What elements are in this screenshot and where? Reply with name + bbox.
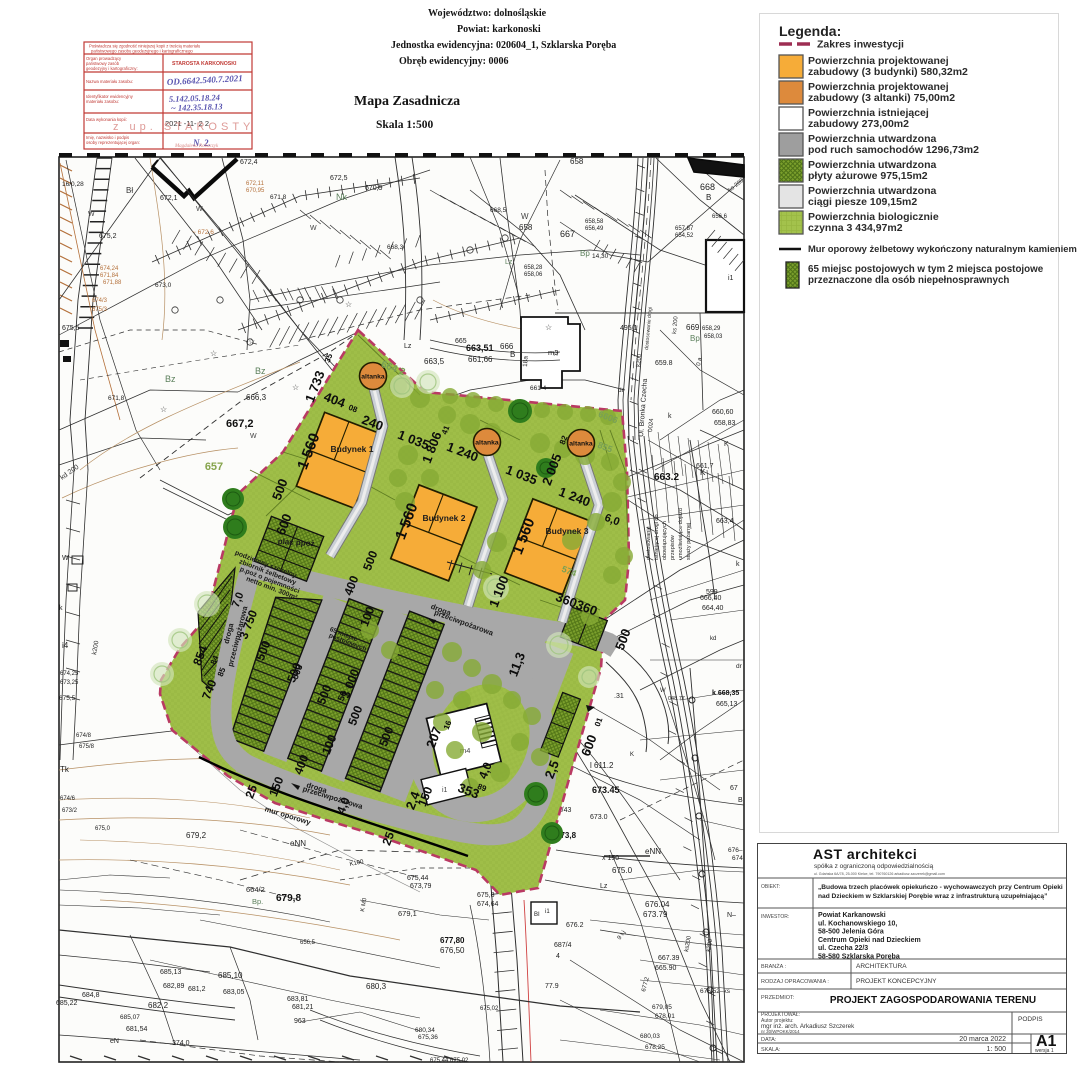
svg-text:656,49: 656,49 xyxy=(585,226,604,232)
svg-text:675,44 675,02: 675,44 675,02 xyxy=(430,1058,469,1064)
svg-text:675.0: 675.0 xyxy=(612,866,633,875)
svg-text:666,3: 666,3 xyxy=(246,393,267,402)
svg-text:672,5: 672,5 xyxy=(330,175,348,182)
svg-text:ciągi piesze 109,15m2: ciągi piesze 109,15m2 xyxy=(808,196,917,208)
svg-text:685,22: 685,22 xyxy=(56,1000,78,1007)
svg-text:665.90: 665.90 xyxy=(655,965,677,972)
svg-text:W: W xyxy=(250,433,257,440)
svg-text:i1: i1 xyxy=(442,787,448,794)
svg-text:straży pożarnej: straży pożarnej xyxy=(686,523,692,560)
svg-text:z up. STAROSTY: z up. STAROSTY xyxy=(113,121,254,133)
svg-text:665,13: 665,13 xyxy=(716,701,738,708)
svg-text:681,54: 681,54 xyxy=(126,1026,148,1033)
svg-text:ARCHITEKTURA: ARCHITEKTURA xyxy=(856,963,907,970)
svg-text:14,30: 14,30 xyxy=(592,253,609,260)
svg-text:684,8: 684,8 xyxy=(82,992,100,999)
svg-text:Bp: Bp xyxy=(580,249,590,258)
svg-text:k: k xyxy=(59,605,63,612)
svg-text:przeznaczone dla osób niepełno: przeznaczone dla osób niepełnosprawnych xyxy=(808,275,1009,286)
svg-text:675,36: 675,36 xyxy=(418,1034,438,1041)
svg-text:i4: i4 xyxy=(62,641,69,650)
svg-text:676.04: 676.04 xyxy=(645,900,670,909)
svg-text:~ 672,6: ~ 672,6 xyxy=(192,229,214,236)
svg-text:nad Dzieckiem w Szklarskiej Po: nad Dzieckiem w Szklarskiej Porębie wraz… xyxy=(818,893,1047,900)
svg-text:667: 667 xyxy=(560,229,575,239)
svg-text:77.9: 77.9 xyxy=(545,983,559,990)
svg-text:materiału zasobu:: materiału zasobu: xyxy=(86,99,119,104)
svg-text:Budynek 2: Budynek 2 xyxy=(423,513,466,523)
svg-text:673/2: 673/2 xyxy=(62,808,78,814)
svg-text:657: 657 xyxy=(205,461,223,473)
svg-text:kd: kd xyxy=(710,636,716,642)
svg-text:657,87: 657,87 xyxy=(675,226,694,232)
svg-text:osoby reprezentującej organ:: osoby reprezentującej organ: xyxy=(86,140,140,145)
svg-text:Lz: Lz xyxy=(600,883,608,890)
svg-text:geodezyjny i kartograficzny:: geodezyjny i kartograficzny: xyxy=(86,66,138,71)
svg-text:☆: ☆ xyxy=(292,383,299,392)
svg-text:płyty ażurowe 975,15m2: płyty ażurowe 975,15m2 xyxy=(808,170,928,182)
svg-text:umożliwiające dojazd: umożliwiające dojazd xyxy=(678,508,684,560)
svg-text:679,1: 679,1 xyxy=(398,909,417,918)
svg-text:RODZAJ OPRACOWANIA :: RODZAJ OPRACOWANIA : xyxy=(761,979,829,985)
svg-text:671,8: 671,8 xyxy=(270,194,287,201)
svg-text:pod ruch samochodów 1296,73m2: pod ruch samochodów 1296,73m2 xyxy=(808,144,979,156)
svg-text:18a: 18a xyxy=(522,356,530,368)
svg-text:675/3: 675/3 xyxy=(92,307,108,313)
svg-text:658,06: 658,06 xyxy=(524,272,543,278)
svg-text:671,88: 671,88 xyxy=(103,280,122,286)
svg-text:W.: W. xyxy=(196,206,204,213)
svg-text:685,07: 685,07 xyxy=(120,1014,140,1021)
svg-text:673,25: 673,25 xyxy=(60,680,79,686)
svg-text:673.79: 673.79 xyxy=(643,910,668,919)
svg-text:658,03: 658,03 xyxy=(704,334,723,340)
svg-text:OBIEKT:: OBIEKT: xyxy=(761,884,780,890)
svg-text:661,7: 661,7 xyxy=(696,463,714,470)
svg-text:N–: N– xyxy=(727,912,736,919)
svg-text:Bz: Bz xyxy=(165,374,176,384)
svg-text:Bp.: Bp. xyxy=(252,897,263,906)
svg-text:DATA:: DATA: xyxy=(761,1037,777,1043)
svg-text:658,83: 658,83 xyxy=(714,420,736,427)
svg-text:altanka: altanka xyxy=(569,441,593,448)
svg-text:675,44: 675,44 xyxy=(407,875,429,882)
svg-text:664/2: 664/2 xyxy=(246,885,265,894)
svg-text:963: 963 xyxy=(294,1018,306,1025)
svg-text:678,01: 678,01 xyxy=(655,1013,675,1020)
svg-text:dr: dr xyxy=(618,387,625,394)
svg-text:685,10: 685,10 xyxy=(218,971,243,980)
svg-text:STAROSTA KARKONOSKI: STAROSTA KARKONOSKI xyxy=(172,61,237,67)
svg-text:58-500 Jelenia Góra: 58-500 Jelenia Góra xyxy=(818,929,884,936)
svg-text:65 miejsc postojowych w tym 2: 65 miejsc postojowych w tym 2 miejsca po… xyxy=(808,264,1044,275)
svg-text:m3: m3 xyxy=(548,348,558,357)
svg-text:685,13: 685,13 xyxy=(160,969,182,976)
svg-text:istniejącej drogi do: istniejącej drogi do xyxy=(654,514,660,560)
svg-text:INWESTOR:: INWESTOR: xyxy=(761,914,789,920)
svg-text:681,21: 681,21 xyxy=(292,1004,314,1011)
svg-text:altanka: altanka xyxy=(475,440,499,447)
svg-text:658,58: 658,58 xyxy=(585,219,604,225)
svg-text:661 4: 661 4 xyxy=(530,385,547,392)
svg-text:k 668,35: k 668,35 xyxy=(712,690,739,697)
svg-text:Bp: Bp xyxy=(690,334,700,343)
svg-text:664,40: 664,40 xyxy=(702,605,724,612)
svg-text:679,2: 679,2 xyxy=(186,831,207,840)
svg-text:B: B xyxy=(738,797,743,804)
svg-text:675,8: 675,8 xyxy=(477,892,495,899)
svg-text:674,24: 674,24 xyxy=(100,266,119,272)
svg-text:eNN: eNN xyxy=(645,847,661,856)
svg-text:Nazwa materiału zasobu:: Nazwa materiału zasobu: xyxy=(86,79,133,84)
svg-text:obowiązujących: obowiązujących xyxy=(662,521,668,560)
svg-text:667,2: 667,2 xyxy=(226,418,254,430)
svg-text:677,80: 677,80 xyxy=(440,936,465,945)
svg-text:czynna 3 434,97m2: czynna 3 434,97m2 xyxy=(808,222,903,234)
svg-text:AST architekci: AST architekci xyxy=(813,846,917,862)
svg-text:656,6: 656,6 xyxy=(712,214,728,220)
svg-text:W: W xyxy=(310,225,317,232)
svg-text:676–: 676– xyxy=(728,847,743,854)
svg-text:Magdalena Robaczyk: Magdalena Robaczyk xyxy=(174,144,219,149)
svg-text:675/8: 675/8 xyxy=(79,744,95,750)
svg-text:20 marca 2022: 20 marca 2022 xyxy=(959,1036,1006,1043)
svg-text:673,0: 673,0 xyxy=(155,282,172,289)
svg-text:682,2: 682,2 xyxy=(148,1001,169,1010)
svg-text:PROJEKT ZAGOSPODAROWANIA TEREN: PROJEKT ZAGOSPODAROWANIA TERENU xyxy=(830,995,1036,1006)
svg-text:680,03: 680,03 xyxy=(640,1033,660,1040)
svg-text:k: k xyxy=(736,561,740,568)
svg-text:B: B xyxy=(510,350,515,359)
svg-text:671,84: 671,84 xyxy=(100,273,119,279)
svg-text:048.77: 048.77 xyxy=(668,696,685,702)
svg-text:679,05: 679,05 xyxy=(652,1004,672,1011)
svg-text:667.39: 667.39 xyxy=(658,955,680,962)
svg-text:681,2: 681,2 xyxy=(188,986,206,993)
svg-text:656,5: 656,5 xyxy=(300,940,316,946)
svg-text:ul. Czecha 22/3: ul. Czecha 22/3 xyxy=(818,945,868,952)
svg-text:67: 67 xyxy=(730,785,738,792)
svg-text:674/6: 674/6 xyxy=(60,796,76,802)
svg-text:663,4: 663,4 xyxy=(716,518,734,525)
svg-text:675,5: 675,5 xyxy=(62,325,80,332)
svg-text:670,95: 670,95 xyxy=(246,188,265,194)
svg-text:spółka z ograniczoną odpowiedz: spółka z ograniczoną odpowiedzialnością xyxy=(814,863,934,870)
svg-text:i1: i1 xyxy=(728,275,734,282)
svg-text:k200: k200 xyxy=(636,353,643,367)
svg-text:659.8: 659.8 xyxy=(655,360,673,367)
svg-text:państwowego zasobu geodezyjneg: państwowego zasobu geodezyjnego i kartog… xyxy=(91,49,193,54)
svg-text:668,3: 668,3 xyxy=(387,244,404,251)
svg-text:678,25: 678,25 xyxy=(645,1044,665,1051)
svg-text:663,51: 663,51 xyxy=(466,343,494,353)
svg-text:Zakres inwestycji: Zakres inwestycji xyxy=(817,39,904,51)
svg-text:zabudowy 273,00m2: zabudowy 273,00m2 xyxy=(808,118,909,130)
svg-text:B: B xyxy=(706,193,711,202)
svg-text:k: k xyxy=(668,413,672,420)
svg-text:663,5: 663,5 xyxy=(424,357,445,366)
svg-text:658: 658 xyxy=(570,157,584,166)
svg-text:660,60: 660,60 xyxy=(712,409,734,416)
svg-text:OD.6642.540.7.2021: OD.6642.540.7.2021 xyxy=(167,73,243,87)
svg-text:SKALA:: SKALA: xyxy=(761,1047,781,1053)
svg-text:680,3: 680,3 xyxy=(366,982,387,991)
svg-text:658,29: 658,29 xyxy=(702,326,721,332)
svg-text:661,66: 661,66 xyxy=(468,355,493,364)
svg-text:675,2: 675,2 xyxy=(99,233,117,240)
svg-text:58-580 Szklarska Poręba: 58-580 Szklarska Poręba xyxy=(818,954,900,961)
svg-text:Budynek 1: Budynek 1 xyxy=(331,444,374,454)
svg-text:Mur oporowy żelbetowy wykończo: Mur oporowy żelbetowy wykończony natural… xyxy=(808,243,1077,254)
svg-text:dostosowanie: dostosowanie xyxy=(646,526,652,560)
svg-text:16/0,28: 16/0,28 xyxy=(62,181,84,188)
svg-text:przepisów: przepisów xyxy=(670,535,676,560)
svg-text:Budynek 3: Budynek 3 xyxy=(546,526,589,536)
svg-text:eN: eN xyxy=(110,1038,119,1045)
svg-text:674: 674 xyxy=(732,855,743,862)
svg-text:~ 142.35.18.13: ~ 142.35.18.13 xyxy=(171,101,224,113)
svg-text:676.2: 676.2 xyxy=(566,922,584,929)
svg-text:Legenda:: Legenda: xyxy=(779,23,841,39)
svg-text:wersja 1: wersja 1 xyxy=(1035,1048,1054,1053)
svg-text:669: 669 xyxy=(686,323,700,332)
svg-text:Bł: Bł xyxy=(126,186,133,195)
svg-text:x 150: x 150 xyxy=(602,855,619,862)
svg-text:W: W xyxy=(62,555,69,562)
svg-text:Tk: Tk xyxy=(60,765,70,774)
svg-text:671,8: 671,8 xyxy=(108,395,125,402)
svg-text:Powiat Karkanowski: Powiat Karkanowski xyxy=(818,912,886,919)
svg-text:675,5: 675,5 xyxy=(59,695,76,702)
svg-text:ul. Gdańska 6A/78, 25-000 Kiel: ul. Gdańska 6A/78, 25-000 Kielce, tel. 7… xyxy=(814,872,945,876)
svg-text:374,0: 374,0 xyxy=(172,1040,190,1047)
svg-text:495/1: 495/1 xyxy=(620,325,638,332)
svg-text:ul. Kochanowskiego 10,: ul. Kochanowskiego 10, xyxy=(818,920,897,927)
svg-text:BI: BI xyxy=(534,912,540,918)
svg-text:679,8: 679,8 xyxy=(276,893,301,904)
svg-text:☆: ☆ xyxy=(545,323,552,332)
svg-text:673,79: 673,79 xyxy=(410,883,432,890)
svg-text:658: 658 xyxy=(519,223,533,232)
svg-text:674/3: 674/3 xyxy=(92,298,108,304)
svg-text:W: W xyxy=(88,211,95,218)
svg-text:PRZEDMIOT:: PRZEDMIOT: xyxy=(761,995,795,1001)
svg-text:☆: ☆ xyxy=(210,349,217,358)
svg-text:„Budowa trzech placówek opieku: „Budowa trzech placówek opiekuńczo - wyc… xyxy=(818,884,1063,891)
svg-text:668,5: 668,5 xyxy=(490,207,507,214)
svg-text:654,52: 654,52 xyxy=(675,233,694,239)
svg-text:676,50: 676,50 xyxy=(440,946,465,955)
svg-text:675,02: 675,02 xyxy=(480,1006,499,1012)
svg-text:BRANŻA :: BRANŻA : xyxy=(761,963,787,970)
svg-text:673.45: 673.45 xyxy=(592,785,620,795)
svg-text:683,05: 683,05 xyxy=(223,989,245,996)
svg-text:zabudowy (3 budynki) 580,32m2: zabudowy (3 budynki) 580,32m2 xyxy=(808,66,968,78)
svg-text:dr: dr xyxy=(736,663,743,670)
svg-text:.31: .31 xyxy=(614,693,624,700)
svg-text:Bz: Bz xyxy=(255,366,266,376)
svg-text:4: 4 xyxy=(556,953,560,960)
svg-text:nr 30/WPOKK/2014: nr 30/WPOKK/2014 xyxy=(761,1029,800,1034)
svg-text:☆: ☆ xyxy=(345,300,352,309)
svg-text:PODPIS: PODPIS xyxy=(1018,1016,1043,1023)
svg-text:i1: i1 xyxy=(545,909,550,915)
svg-text:1: 500: 1: 500 xyxy=(987,1046,1007,1053)
svg-text:☆: ☆ xyxy=(248,337,255,346)
svg-text:☆: ☆ xyxy=(160,405,167,414)
svg-text:674,25: 674,25 xyxy=(60,671,79,677)
svg-text:666,40: 666,40 xyxy=(700,595,722,602)
svg-text:675,0: 675,0 xyxy=(95,826,111,832)
svg-text:672,11: 672,11 xyxy=(246,181,265,187)
svg-text:W: W xyxy=(521,212,529,221)
svg-text:676,52–ks: 676,52–ks xyxy=(700,988,731,995)
svg-text:l 611.2: l 611.2 xyxy=(590,761,614,770)
svg-text:658,28: 658,28 xyxy=(524,265,543,271)
svg-text:K: K xyxy=(630,752,634,758)
svg-text:670,9: 670,9 xyxy=(365,185,383,192)
svg-text:673.0: 673.0 xyxy=(590,814,608,821)
svg-text:Lz: Lz xyxy=(505,259,513,266)
svg-text:Nk: Nk xyxy=(336,192,347,202)
svg-text:0024: 0024 xyxy=(648,418,655,432)
svg-text:687/4: 687/4 xyxy=(554,942,572,949)
svg-text:zabudowy (3 altanki) 75,00m2: zabudowy (3 altanki) 75,00m2 xyxy=(808,92,955,104)
svg-text:eNN: eNN xyxy=(290,839,306,848)
svg-text:599: 599 xyxy=(706,589,718,596)
svg-text:668: 668 xyxy=(700,182,715,192)
svg-text:W: W xyxy=(660,688,666,694)
svg-text:Centrum Opieki nad Dzieckiem: Centrum Opieki nad Dzieckiem xyxy=(818,937,921,944)
svg-text:680,34: 680,34 xyxy=(415,1027,435,1034)
svg-text:altanka: altanka xyxy=(361,374,385,381)
svg-text:PROJEKT KONCEPCYJNY: PROJEKT KONCEPCYJNY xyxy=(856,978,937,985)
svg-text:Lz: Lz xyxy=(404,343,412,350)
svg-text:683,81: 683,81 xyxy=(287,996,309,1003)
svg-text:674/8: 674/8 xyxy=(76,733,92,739)
svg-text:663.2: 663.2 xyxy=(654,472,679,483)
svg-text:K: K xyxy=(724,441,729,448)
svg-text:672,1: 672,1 xyxy=(160,195,178,202)
svg-text:682,89: 682,89 xyxy=(163,983,185,990)
svg-text:674,64: 674,64 xyxy=(477,901,499,908)
